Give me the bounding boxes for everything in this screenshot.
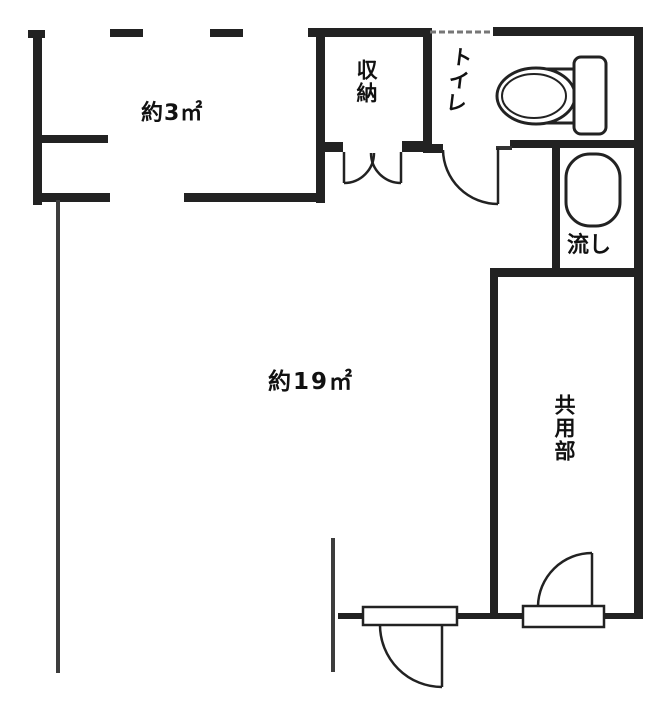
wall-storage-right — [423, 28, 432, 153]
toilet-tank — [574, 57, 606, 134]
wall-common-left — [490, 277, 498, 618]
boundary-line-left — [56, 200, 60, 673]
wall-left-outer — [33, 30, 42, 205]
wall-bottom-b — [457, 613, 523, 619]
storage-door-arc-right — [371, 153, 401, 183]
wall-right-outer — [634, 27, 643, 619]
floor-plan: 約3㎡ 約19㎡ 収納 トイレ 流し 共用部 — [0, 0, 667, 709]
room-label-common-area: 共用部 — [553, 394, 575, 463]
main-entry-door[interactable] — [363, 607, 457, 687]
wall-storage-door-jamb-right — [402, 141, 423, 152]
sink-basin-icon — [566, 154, 620, 226]
wall-toilet-door-jamb — [431, 144, 443, 153]
wall-bottom-a — [338, 613, 363, 619]
wall-sink-left — [552, 145, 560, 272]
toilet-icon — [497, 57, 606, 134]
boundary-line-mid — [331, 538, 335, 672]
storage-door-arc-left — [344, 153, 374, 183]
wall-small-room-stub — [33, 135, 108, 143]
wall-top-left-tick — [28, 30, 45, 38]
floor-plan-drawing — [0, 0, 667, 709]
wall-storage-left — [316, 28, 325, 203]
wall-toilet-bottom — [510, 140, 643, 148]
sink-basin — [566, 154, 620, 226]
wall-common-top — [490, 268, 643, 277]
wall-storage-door-jamb-left — [324, 142, 343, 152]
main-entry-threshold — [363, 607, 457, 625]
wall-small-room-bottom-left — [33, 193, 110, 202]
boundary-lines — [56, 200, 335, 673]
room-label-main-room: 約19㎡ — [268, 370, 354, 394]
wall-top-toilet — [493, 27, 643, 36]
wall-top-segment-a — [110, 29, 143, 37]
toilet-door-arc — [443, 150, 498, 204]
common-area-door-arc — [538, 553, 592, 606]
common-area-threshold — [523, 606, 604, 627]
wall-bottom-c — [604, 613, 643, 619]
wall-top-segment-b — [210, 29, 243, 37]
toilet-door[interactable] — [443, 148, 498, 204]
room-label-sink: 流し — [567, 234, 611, 257]
common-area-door[interactable] — [523, 553, 604, 627]
room-label-storage: 収納 — [355, 59, 377, 105]
room-label-small-room: 約3㎡ — [141, 102, 203, 125]
wall-top-storage — [308, 28, 432, 37]
main-entry-door-arc — [380, 625, 442, 687]
toilet-bowl-outer — [497, 68, 575, 124]
storage-double-door[interactable] — [344, 152, 401, 183]
wall-small-room-bottom-right — [184, 193, 325, 202]
